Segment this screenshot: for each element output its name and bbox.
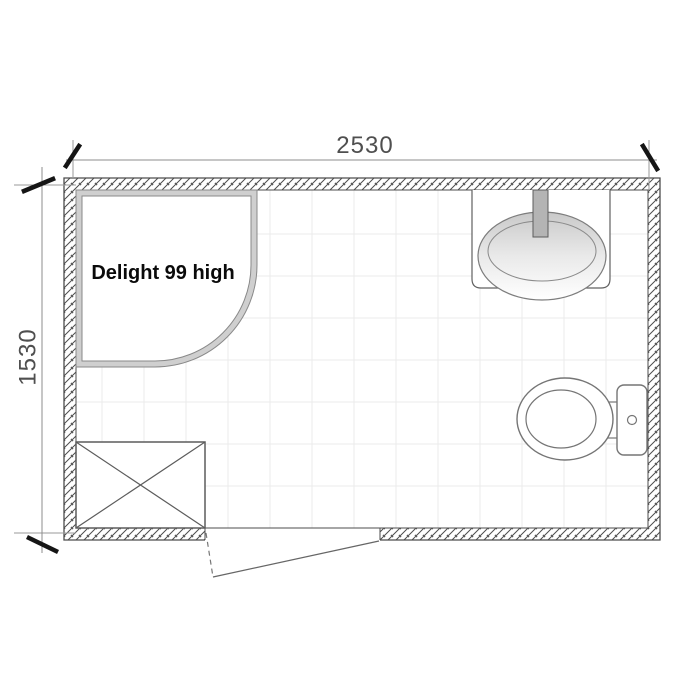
shower-label: Delight 99 high — [91, 262, 234, 284]
sink — [472, 190, 610, 300]
wall-bottom-left — [64, 528, 205, 540]
sink-tap — [533, 190, 548, 237]
wall-right — [648, 190, 660, 528]
floor-plan-page: Delight 99 high — [0, 0, 700, 700]
dimension-width-label: 2530 — [336, 132, 393, 159]
dimension-height-label: 1530 — [15, 328, 42, 385]
wall-top — [64, 178, 660, 190]
washing-machine — [76, 442, 205, 528]
toilet-bowl-inner — [526, 390, 596, 448]
wall-left — [64, 190, 76, 528]
toilet-flush-button — [628, 416, 637, 425]
wall-bottom-right — [380, 528, 660, 540]
floorplan-svg: Delight 99 high — [0, 0, 700, 700]
toilet — [517, 378, 647, 460]
